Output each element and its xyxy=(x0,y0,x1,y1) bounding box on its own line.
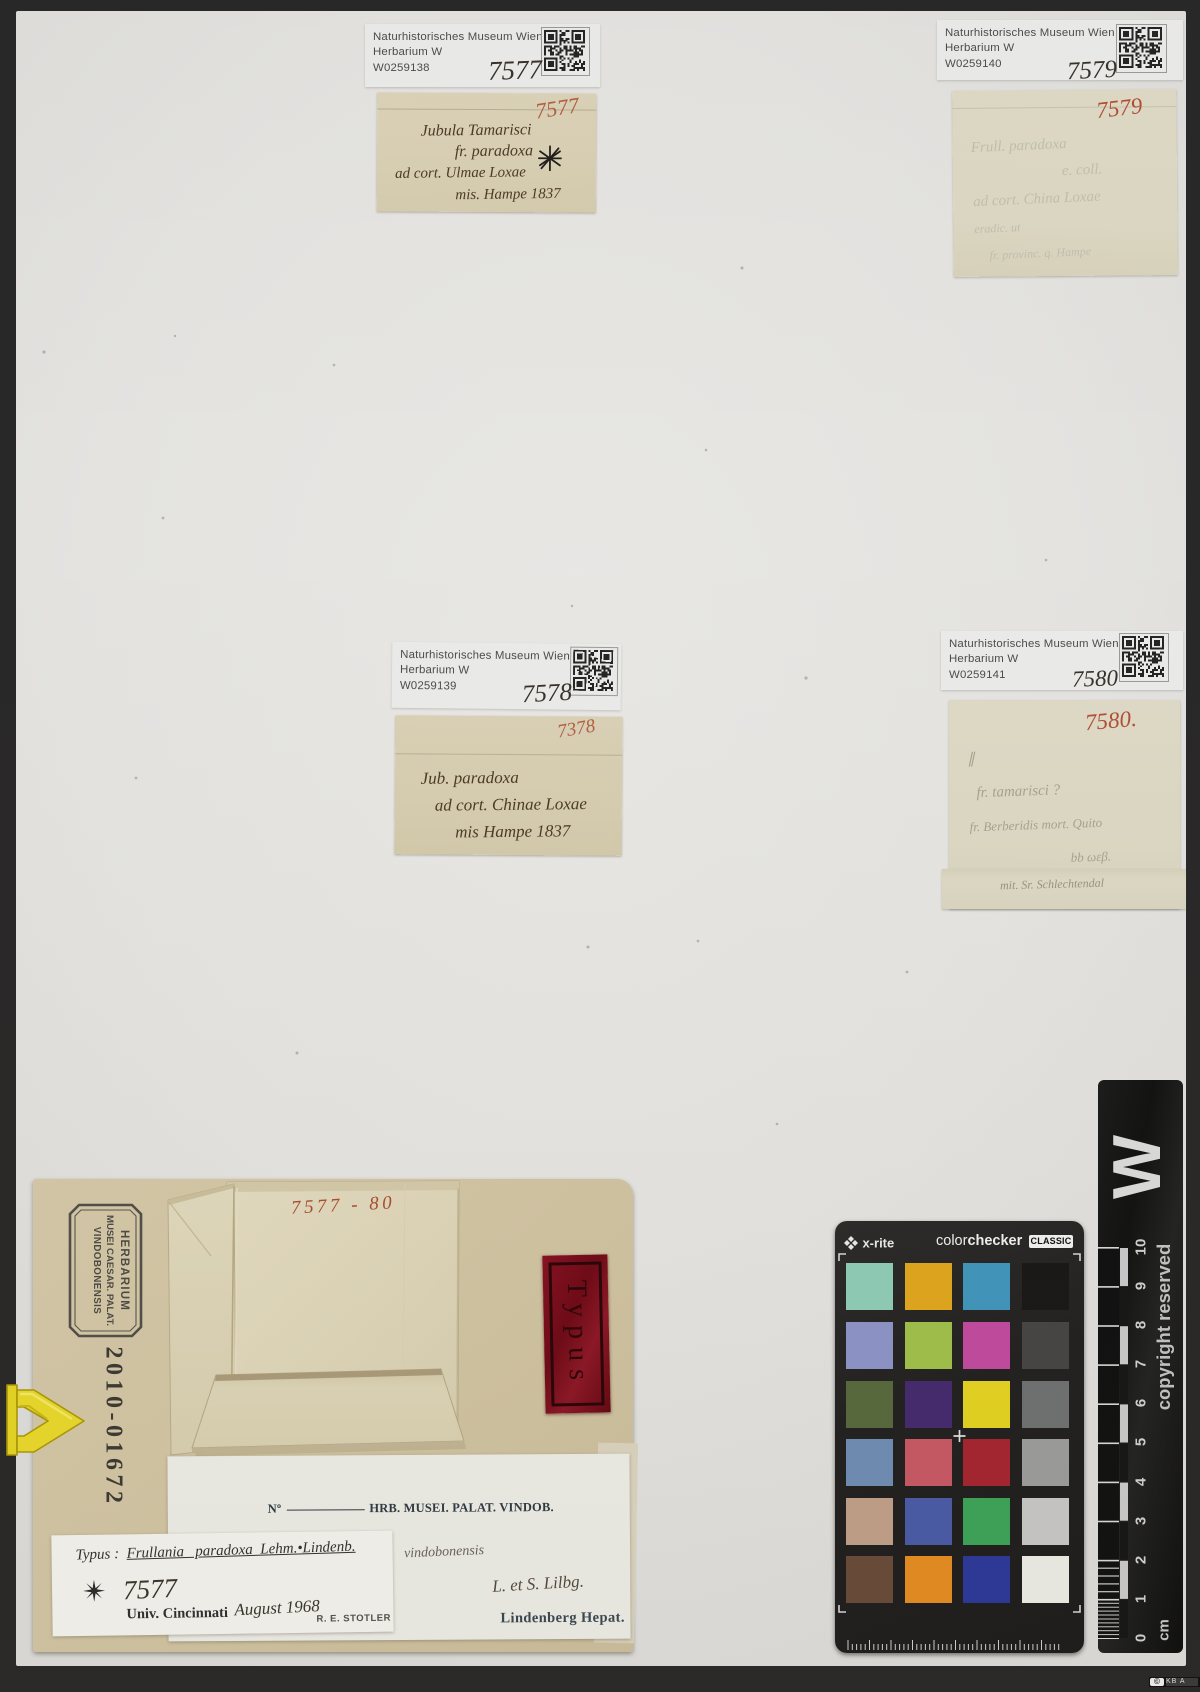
svg-text:HERBARIUM: HERBARIUM xyxy=(118,1230,130,1311)
svg-text:MUSEI CAESAR. PALAT.: MUSEI CAESAR. PALAT. xyxy=(104,1215,115,1326)
svg-text:VINDOBONENSIS: VINDOBONENSIS xyxy=(91,1227,102,1314)
